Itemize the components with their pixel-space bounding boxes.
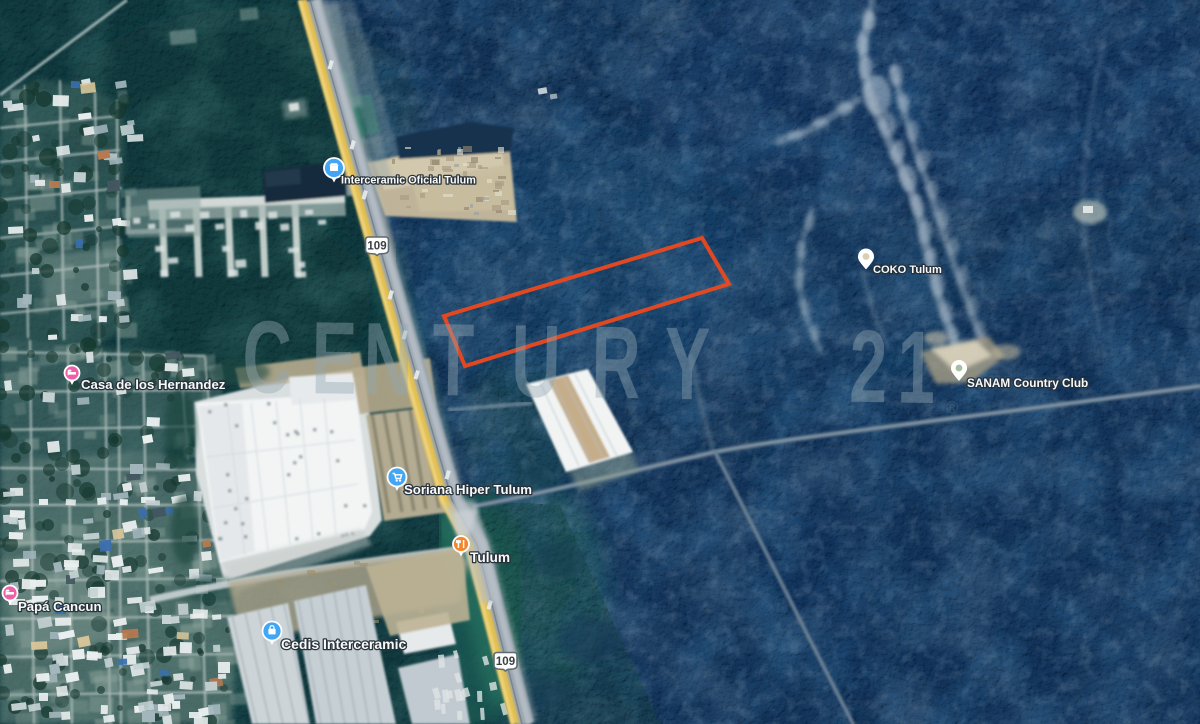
- svg-text:COKO Tulum: COKO Tulum: [873, 264, 942, 276]
- svg-text:Soriana Hiper Tulum: Soriana Hiper Tulum: [404, 482, 532, 497]
- svg-text:®: ®: [946, 398, 959, 417]
- svg-text:Interceramic Oficial Tulum: Interceramic Oficial Tulum: [341, 174, 476, 186]
- svg-text:Cedis Interceramic: Cedis Interceramic: [281, 636, 406, 652]
- svg-text:SANAM Country Club: SANAM Country Club: [967, 376, 1088, 390]
- svg-text:Papá Cancun: Papá Cancun: [18, 599, 102, 614]
- svg-text:109: 109: [496, 656, 515, 668]
- svg-text:Tulum: Tulum: [470, 550, 510, 565]
- svg-text:Casa de los Hernandez: Casa de los Hernandez: [81, 377, 226, 392]
- svg-text:109: 109: [367, 241, 386, 253]
